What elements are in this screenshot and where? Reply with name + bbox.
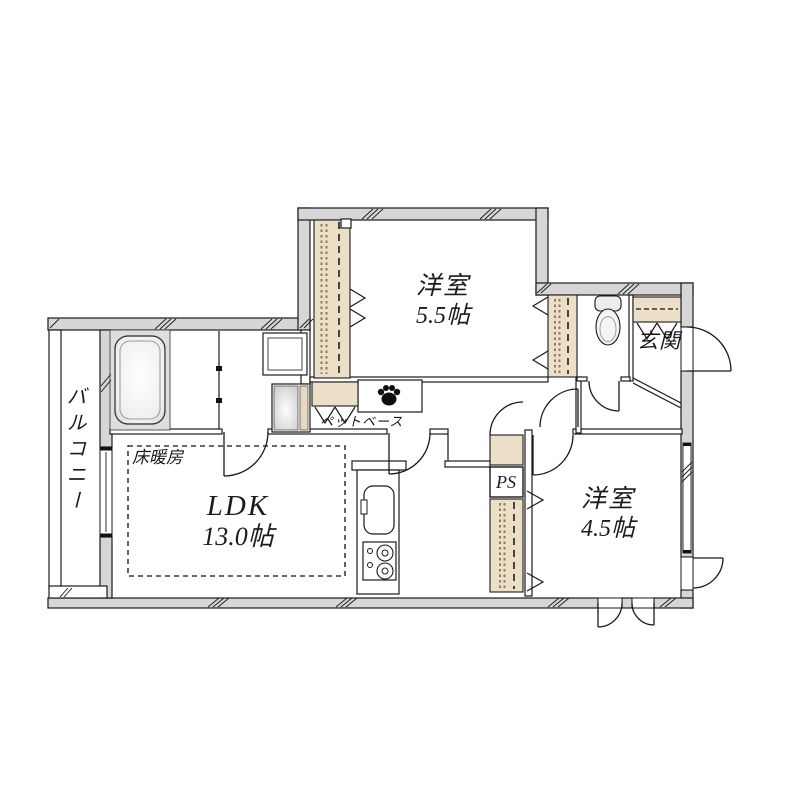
- entrance-step: [633, 378, 681, 408]
- pet-base-label: ペットベース: [320, 415, 403, 428]
- room-size-western-top: 5.5帖: [416, 304, 470, 328]
- western-right-window: [683, 443, 691, 553]
- balcony-window: [100, 447, 112, 537]
- washroom-door-arc: [224, 432, 268, 476]
- room-label-western-top: 洋室: [416, 274, 470, 299]
- kitchen-sink: [364, 486, 394, 534]
- room-label-balcony: バルコニー: [64, 386, 84, 516]
- floor-plan-drawing: [0, 0, 800, 800]
- closet-western-top-left: [314, 219, 365, 378]
- side-window-slot: [681, 557, 693, 590]
- kitchen-counter: [352, 461, 406, 594]
- folding-door-marks: [533, 297, 548, 369]
- western-right-door-arc: [533, 435, 573, 475]
- vanity-unit: [272, 384, 310, 432]
- floor-plan: 洋室 5.5帖 洋室 4.5帖 LDK 13.0帖 床暖房 バルコニー 玄関 P…: [0, 0, 800, 800]
- floor-heating-label: 床暖房: [132, 449, 183, 466]
- bathroom: [110, 330, 222, 430]
- room-size-western-right: 4.5帖: [581, 517, 635, 541]
- side-window-arc: [693, 558, 723, 588]
- ps-door-arc: [490, 402, 523, 435]
- closet-western-top-right: [533, 295, 577, 377]
- entrance-door-slot: [681, 327, 693, 371]
- room-label-western-right: 洋室: [581, 487, 635, 512]
- bathtub: [115, 336, 165, 424]
- entrance-door-arc: [687, 327, 731, 371]
- pipe-space-label: PS: [496, 473, 516, 491]
- toilet-icon: [595, 296, 621, 345]
- folding-door-marks: [350, 289, 365, 327]
- stove: [363, 542, 396, 580]
- toilet-door-arc: [589, 381, 619, 411]
- closet-western-right: [490, 491, 543, 592]
- washing-machine-pan: [263, 333, 307, 375]
- room-label-ldk: LDK: [207, 492, 269, 521]
- pet-base-cabinet: [312, 382, 358, 406]
- hall-door-arc: [540, 389, 578, 427]
- room-label-entrance: 玄関: [637, 331, 681, 352]
- room-size-ldk: 13.0帖: [202, 524, 274, 550]
